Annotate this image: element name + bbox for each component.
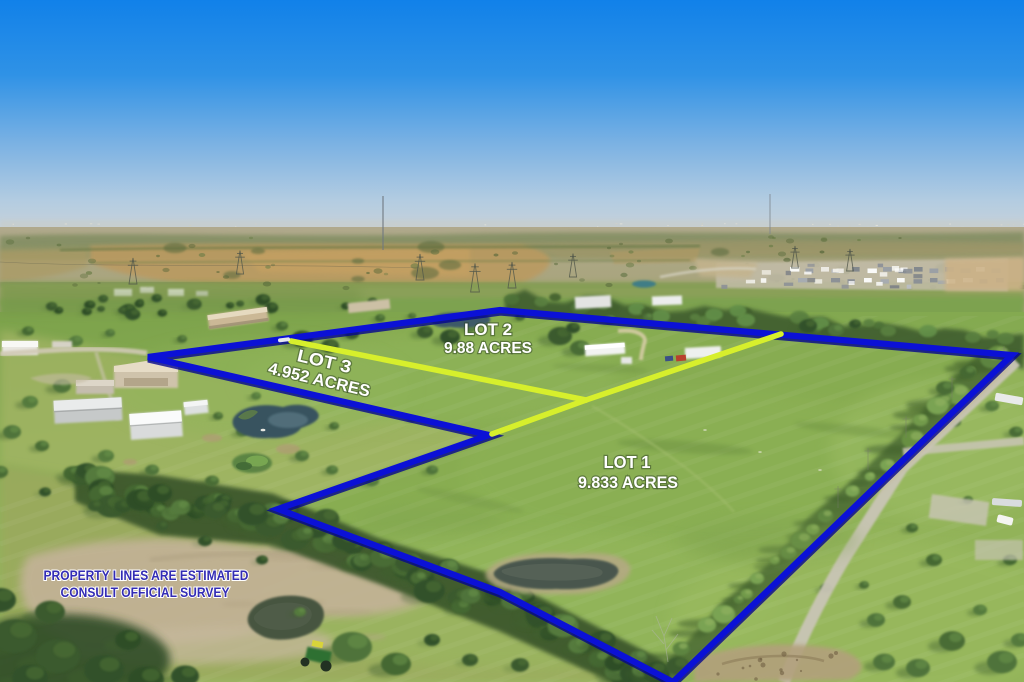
svg-text:LOT 2: LOT 2 — [464, 321, 512, 339]
svg-text:PROPERTY LINES ARE ESTIMATED: PROPERTY LINES ARE ESTIMATED — [44, 568, 249, 583]
svg-text:LOT 1: LOT 1 — [604, 452, 651, 472]
svg-text:9.88 ACRES: 9.88 ACRES — [444, 340, 532, 357]
svg-text:9.833 ACRES: 9.833 ACRES — [578, 474, 678, 492]
svg-text:CONSULT OFFICIAL SURVEY: CONSULT OFFICIAL SURVEY — [61, 585, 230, 600]
